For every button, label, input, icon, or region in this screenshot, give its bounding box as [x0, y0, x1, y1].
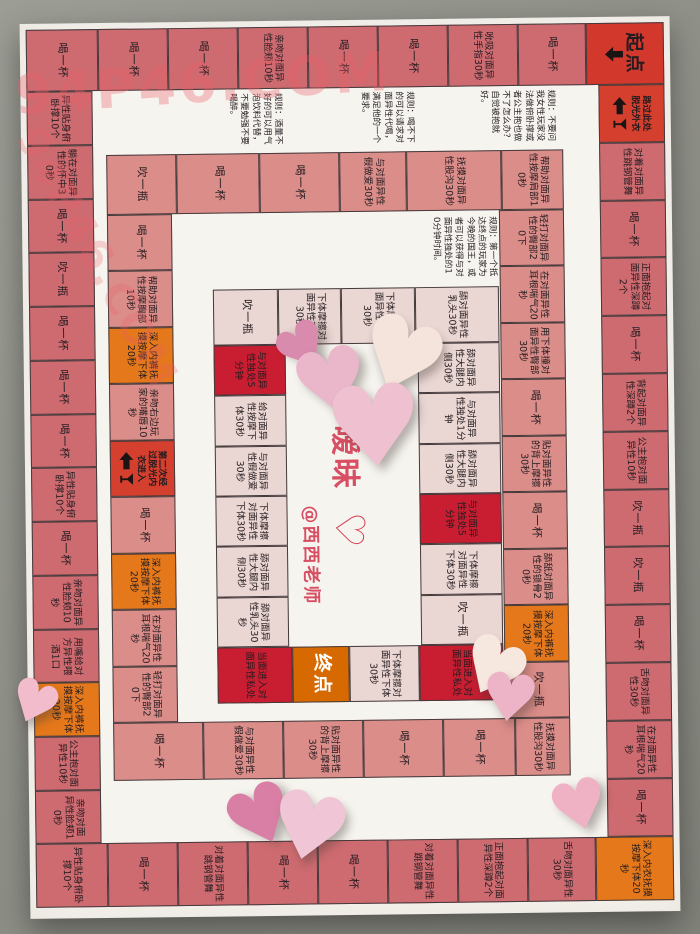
board-cell: 喝一杯 [98, 28, 169, 91]
board-cell: 喝一杯 [113, 722, 204, 781]
board-cell: 舔对面异性大腿内侧30秒 [216, 546, 289, 598]
board-cell: 与对面异性独处5分钟 [214, 345, 287, 396]
board-cell: 躺在对面异性的怀中30秒 [27, 145, 94, 200]
rule-text-pushups: 规则：不要问我女性玩家没法做俯卧撑或者公主抱也做不了怎么办？自觉被抱就好。 [440, 87, 559, 150]
board-cell: 舌吻对面异性30秒 [605, 662, 672, 721]
board-cell: 抚摸对面异性股沟30秒 [406, 150, 502, 211]
board-cell: 喝一杯 [110, 496, 176, 554]
board-cell: 喝一杯 [259, 152, 340, 213]
board-cell: 公主抱对面异性10秒 [34, 736, 101, 791]
board-cell: 吮吸对面异性手指30秒 [448, 24, 519, 87]
board-cell: 异性贴身俯卧撑10个 [26, 91, 93, 146]
board-cell: 与对面异性假做爱30秒 [339, 151, 407, 212]
board-cell: 亲吻对面异性脸颊10秒 [35, 790, 102, 844]
board-cell: 吹一瓶 [106, 154, 177, 215]
board-cell: 在对面异性耳根喘气20秒 [112, 609, 178, 667]
board-cell: 舔对面异性乳头30秒 [415, 286, 500, 343]
board-cell: 喝一杯 [600, 200, 667, 258]
board-title: 暧昧 [333, 423, 370, 493]
board-cell: 抚摸对面异性股沟30秒 [515, 717, 571, 776]
board-cell: 对着对面异性跳钢管舞 [388, 839, 459, 904]
board-cell: 深入内裤抚摸按摩下体20秒 [108, 327, 174, 384]
board-cell: 背起对面异性深蹲2个 [602, 373, 669, 432]
board-cell: 喝一杯 [168, 27, 239, 90]
board-cell: 与对面异性假做爱30秒 [215, 446, 288, 497]
board-cell: 喝一杯 [32, 521, 99, 576]
board-cell: 吹一瓶 [603, 489, 670, 547]
board-cell: 舔舐对面异性的锁骨20秒 [503, 548, 569, 605]
gate-cell: 路过此处脱光外衣 [598, 84, 665, 143]
board-cell: 喝一杯 [502, 491, 568, 549]
board-cell: 轻打对面异性的臀部20下 [112, 666, 178, 723]
board-cell: 舔对面异性大腿内侧30秒 [419, 443, 502, 494]
board-cell: 喝一杯 [28, 199, 95, 253]
board-cell: 喝一杯 [605, 604, 672, 663]
board-cell: 喝一杯 [30, 360, 97, 415]
board-cell: 舔对面异性大腿内侧30秒 [417, 342, 500, 393]
board-cell: 吹一瓶 [421, 594, 504, 645]
author-handle: @西西老师 [298, 493, 326, 617]
board-cell: 深入内裤抚摸按摩下体20秒 [111, 553, 177, 610]
board-cell: 对着对面异性跳钢管舞 [599, 142, 666, 201]
board-game-photo: { "watermark": "94P46.COM", "center": { … [0, 0, 700, 934]
board-cell: 正面抱起对面异性深蹲2个 [600, 257, 667, 316]
board-cell: 与对面异性独处5分钟 [419, 493, 502, 544]
board-cell: 喝一杯 [107, 214, 173, 271]
heart-decoration-icon: ♥ [283, 331, 379, 434]
board-cell: 深入内衣抚摸按摩下体20秒 [596, 836, 675, 901]
board-cell: 帮助对面异性按摩胸部10秒 [108, 270, 174, 328]
board-cell: 下体摩擦对面异性下体30秒 [215, 496, 288, 547]
board-cell: 喝一杯 [363, 719, 444, 778]
board-cell: 下体摩擦对面异性下体30秒 [278, 288, 342, 345]
board-cell: 下体摩擦对面异性下体30秒 [341, 287, 416, 344]
board-cell: 贴对面异性的背上摩擦30秒 [283, 720, 364, 779]
board-cell: 喝一杯 [248, 840, 319, 905]
board-cell: 吹一瓶 [504, 661, 570, 718]
board-cell: 在对面异性耳根喘气20秒 [500, 265, 566, 323]
board-cell: 公主抱对面异性10秒 [603, 431, 670, 490]
board-cell: 喝一杯 [318, 840, 389, 905]
board-cell: 舔对面异性乳头30秒 [217, 597, 290, 648]
board-cell: 当面进入对面异性私处 [217, 647, 293, 704]
board-cell: 喝一杯 [501, 378, 567, 436]
board-cell: 轻打对面异性的臀部20下 [499, 209, 565, 266]
board-cell: 舌吻对面异性30秒 [528, 837, 597, 902]
board-cell: 异性贴身俯卧撑10个 [36, 843, 109, 908]
board-cell: 喝一杯 [176, 153, 260, 214]
heart-outline-icon: ♡ [324, 504, 374, 554]
board-cell: 喝一杯 [308, 26, 379, 89]
board-cell: 喝一杯 [601, 315, 668, 374]
board-cell: 亲吻对面异性脸颊10秒 [32, 575, 99, 630]
board-cell: 深入内裤抚摸按摩下体20秒 [504, 604, 570, 662]
board-cell: 用下体撞对面异性臀部30秒 [500, 322, 566, 379]
board-cell: 与对面异性独处1分钟 [418, 392, 501, 444]
board-cell: 喝一杯 [518, 23, 587, 86]
board-cell: 吹一瓶 [213, 289, 279, 346]
board-cell: 对着对面异性跳钢管舞 [178, 841, 249, 906]
rule-text-substitute: 规则：喝不下的可以请求对面异性代喝，满足他的一个要求。 [322, 89, 419, 152]
board-cell: 喝一杯 [443, 718, 516, 777]
board-cell: 亲吻右边玩家的嘴唇10秒 [109, 383, 175, 441]
board-cell: 与对面异性假做爱30秒 [203, 721, 284, 780]
board-cell: 异性贴身俯卧撑10个 [31, 467, 98, 522]
board-cells: 喝一杯喝一杯喝一杯亲吻对面异性脸颊10秒喝一杯喝一杯吮吸对面异性手指30秒喝一杯… [20, 16, 670, 24]
rule-text-drinks: 规则：酒量不好的可以用气泡饮料代替，不要勉强不要喝醉。 [180, 91, 285, 154]
board-cell: 喝一杯 [378, 25, 449, 88]
board-cell: 下体摩擦对面异性下体30秒 [349, 645, 420, 702]
board-cell: 亲吻对面异性脸颊10秒 [238, 26, 309, 89]
end-cell: 终点 [292, 646, 350, 703]
board-cell: 在对面异性耳根喘气20秒 [606, 720, 673, 779]
board-cell: 吹一瓶 [604, 546, 671, 605]
board-cell: 喝一杯 [607, 778, 674, 837]
board-cell: 深入内裤抚摸按摩下体20秒 [34, 682, 101, 737]
board-cell: 下体摩擦对面异性下体30秒 [420, 543, 503, 595]
gate-cell: 第二次经过脱光内衣进入 [110, 440, 176, 497]
board-cell: 喝一杯 [29, 306, 96, 361]
board-cell: 喝一杯 [26, 29, 99, 92]
board-cell: 喝一杯 [30, 414, 97, 468]
board-cell: 吹一瓶 [28, 252, 95, 307]
rule-text-winner: 规则：第一个抵达终点的玩家为今晚的国王，或者可以获得与对面异性独处的10分钟时间… [414, 214, 501, 281]
board-cell: 给对面异性按摩下体30秒 [214, 395, 287, 447]
board-cell: 喝一杯 [108, 842, 179, 907]
board-cell: 帮助对面异性按摩肩部10秒 [501, 149, 564, 210]
board-cell: 用嘴给对方异性喂酒1口 [33, 629, 100, 683]
board-cell: 当面进入对面异性私处 [419, 644, 504, 701]
game-board-paper: 喝一杯喝一杯喝一杯亲吻对面异性脸颊10秒喝一杯喝一杯吮吸对面异性手指30秒喝一杯… [20, 16, 681, 919]
board-cell: 正面抱起对面异性深蹲2个 [458, 838, 529, 903]
board-cell: 贴对面异性的背上摩擦30秒 [502, 435, 568, 492]
start-cell: 起点 [586, 22, 665, 85]
